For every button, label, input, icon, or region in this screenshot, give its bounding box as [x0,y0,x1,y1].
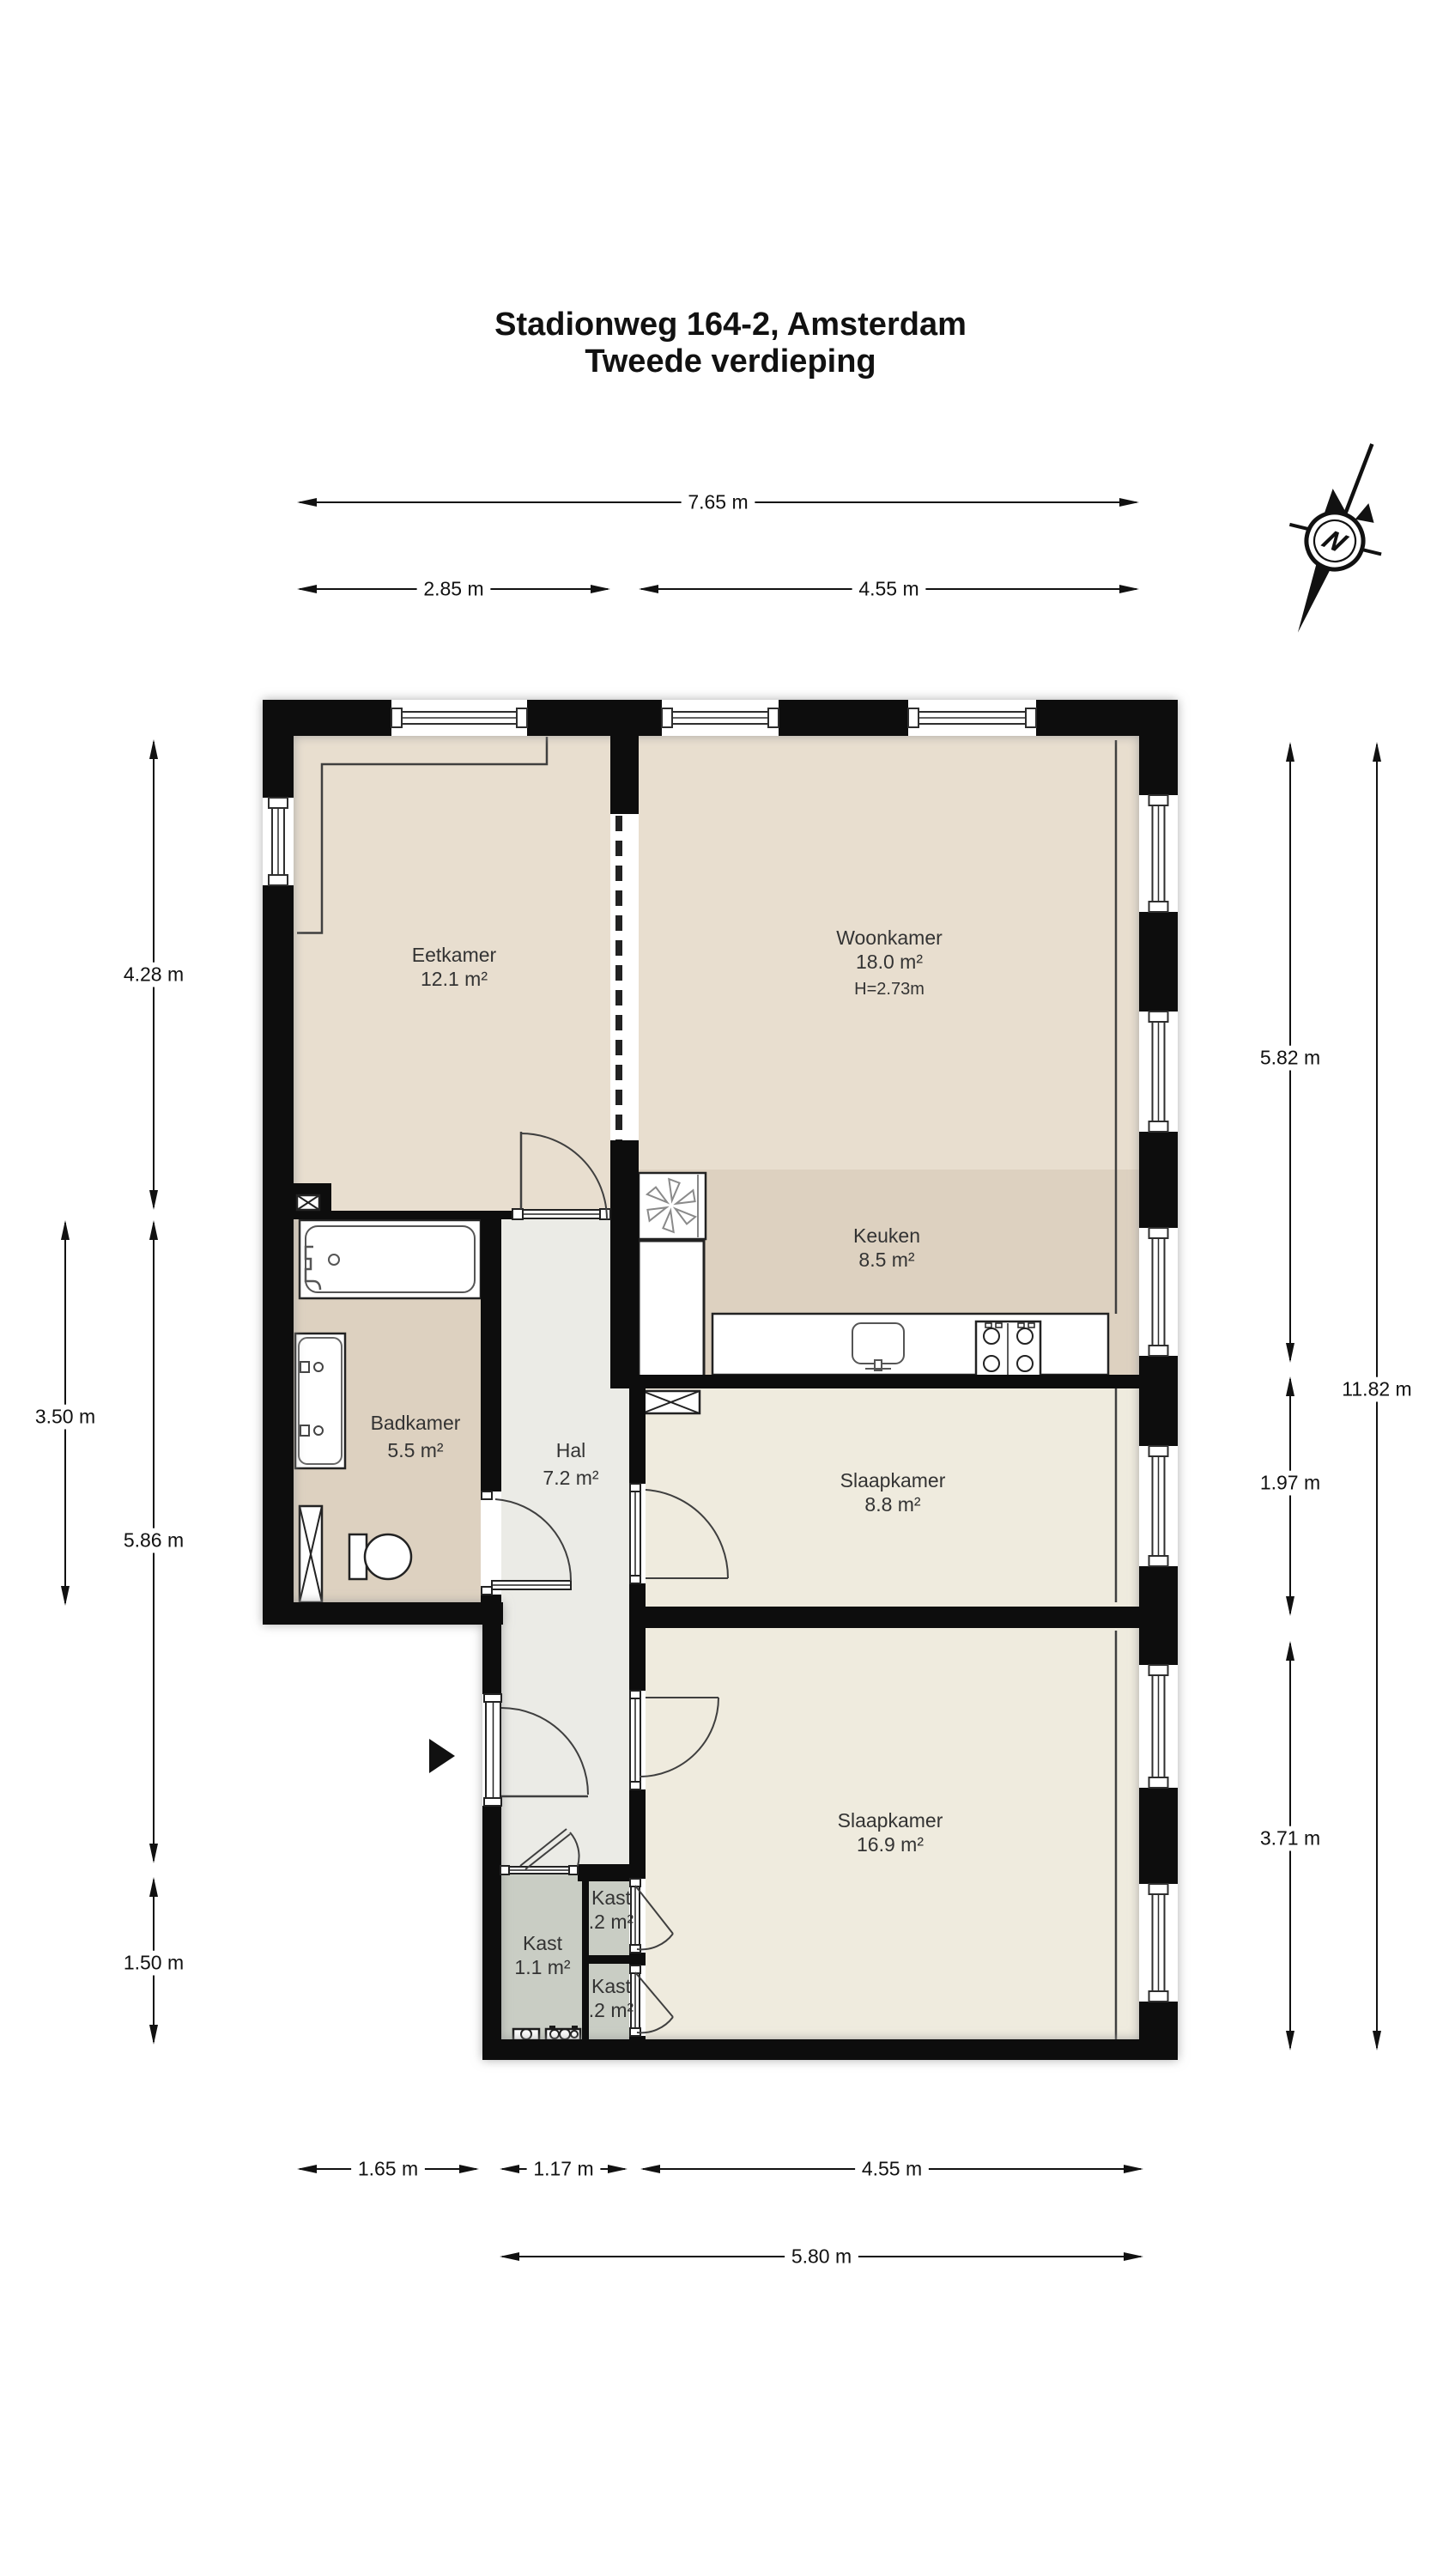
svg-text:4.28 m: 4.28 m [124,963,184,986]
svg-text:1.65 m: 1.65 m [358,2158,418,2180]
svg-text:1.97 m: 1.97 m [1260,1472,1320,1494]
svg-text:.2 m²: .2 m² [589,1911,634,1933]
svg-text:8.8 m²: 8.8 m² [864,1493,921,1516]
svg-text:5.86 m: 5.86 m [124,1529,184,1552]
svg-text:1.50 m: 1.50 m [124,1952,184,1974]
svg-text:4.55 m: 4.55 m [862,2158,922,2180]
svg-text:4.55 m: 4.55 m [858,578,919,600]
svg-text:Slaapkamer: Slaapkamer [838,1809,943,1832]
svg-text:5.82 m: 5.82 m [1260,1047,1320,1069]
svg-text:3.71 m: 3.71 m [1260,1827,1320,1850]
svg-text:1.17 m: 1.17 m [533,2158,593,2180]
svg-text:2.85 m: 2.85 m [423,578,483,600]
svg-text:5.5 m²: 5.5 m² [387,1439,444,1461]
svg-text:Woonkamer: Woonkamer [836,927,943,949]
svg-text:Stadionweg 164-2, Amsterdam: Stadionweg 164-2, Amsterdam [494,307,967,343]
svg-text:7.2 m²: 7.2 m² [543,1467,599,1489]
svg-text:Kast: Kast [591,1886,632,1909]
svg-text:Eetkamer: Eetkamer [412,944,497,966]
svg-text:18.0 m²: 18.0 m² [856,951,923,973]
svg-text:12.1 m²: 12.1 m² [421,968,488,990]
svg-text:1.1 m²: 1.1 m² [514,1956,571,1978]
svg-text:11.82 m: 11.82 m [1342,1378,1411,1400]
svg-text:7.65 m: 7.65 m [688,491,748,513]
svg-text:H=2.73m: H=2.73m [854,980,925,999]
svg-text:Keuken: Keuken [853,1224,920,1247]
svg-text:8.5 m²: 8.5 m² [858,1249,915,1271]
svg-text:Tweede verdieping: Tweede verdieping [585,343,876,380]
svg-text:Kast: Kast [523,1932,563,1954]
svg-text:16.9 m²: 16.9 m² [857,1833,924,1856]
svg-text:.2 m²: .2 m² [589,1999,634,2021]
svg-text:Hal: Hal [556,1439,586,1461]
svg-text:Badkamer: Badkamer [371,1412,461,1434]
svg-text:3.50 m: 3.50 m [35,1406,95,1428]
svg-text:Kast: Kast [591,1975,632,1997]
svg-text:5.80 m: 5.80 m [791,2245,852,2268]
svg-text:Slaapkamer: Slaapkamer [840,1469,946,1492]
